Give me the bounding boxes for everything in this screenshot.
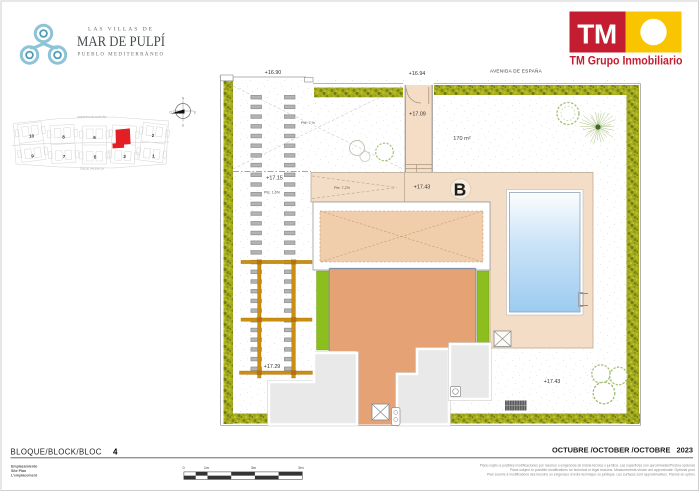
svg-text:L’emplacement: L’emplacement [11, 474, 38, 478]
svg-text:Pte: 7,2%: Pte: 7,2% [334, 186, 351, 190]
svg-text:Plans subject to possible modi: Plans subject to possible modifications … [510, 468, 696, 472]
svg-text:E: E [194, 111, 196, 115]
svg-text:+17.29: +17.29 [264, 364, 281, 370]
svg-text:+17.43: +17.43 [414, 185, 431, 191]
svg-text:+16.90: +16.90 [265, 70, 282, 76]
svg-text:N: N [182, 97, 185, 101]
svg-text:5m: 5m [298, 466, 303, 470]
svg-text:9: 9 [31, 154, 34, 159]
svg-text:3: 3 [123, 154, 126, 159]
svg-text:1m: 1m [204, 466, 209, 470]
svg-text:S: S [182, 124, 184, 128]
svg-text:+17.43: +17.43 [544, 379, 561, 385]
svg-text:Pte: 1,6%: Pte: 1,6% [264, 191, 281, 195]
svg-text:5: 5 [94, 155, 97, 160]
svg-text:MAR DE PULPÍ: MAR DE PULPÍ [77, 33, 165, 50]
svg-text:6: 6 [93, 135, 96, 140]
svg-text:TM Grupo Inmobiliario: TM Grupo Inmobiliario [570, 55, 683, 68]
svg-text:3m: 3m [251, 466, 256, 470]
svg-text:Plano sujeto a posibles modifi: Plano sujeto a posibles modificaciones p… [480, 464, 696, 468]
svg-text:CALLE VALENCIA: CALLE VALENCIA [80, 167, 104, 171]
svg-text:+16.94: +16.94 [409, 71, 426, 77]
svg-text:AVENIDA DE ESPAÑA: AVENIDA DE ESPAÑA [490, 68, 543, 74]
svg-text:10: 10 [29, 134, 35, 139]
svg-text:OCTUBRE /OCTOBER /OCTOBRE 20: OCTUBRE /OCTOBER /OCTOBRE 2023 [552, 446, 693, 455]
svg-text:Pte: 7 %: Pte: 7 % [301, 121, 316, 125]
svg-text:7: 7 [63, 154, 66, 159]
svg-text:+17.09: +17.09 [409, 112, 426, 118]
svg-text:4: 4 [113, 448, 118, 457]
svg-text:+17.15: +17.15 [266, 176, 283, 182]
svg-text:170 m²: 170 m² [453, 136, 471, 142]
svg-text:Emplazamiento: Emplazamiento [11, 465, 38, 469]
svg-text:PUEBLO MEDITERRÁNEO: PUEBLO MEDITERRÁNEO [78, 52, 165, 58]
svg-text:8: 8 [62, 135, 65, 140]
svg-text:Site Plan: Site Plan [11, 469, 26, 473]
svg-text:AVENIDA DE ESPAÑA: AVENIDA DE ESPAÑA [77, 114, 107, 119]
svg-text:TM: TM [577, 19, 616, 50]
svg-text:B: B [454, 179, 467, 199]
svg-text:2: 2 [152, 133, 155, 138]
svg-text:0: 0 [182, 466, 184, 470]
svg-text:O: O [169, 111, 172, 115]
svg-text:Plan soumis à modifications de: Plan soumis à modifications des besoins … [487, 473, 696, 477]
svg-text:1: 1 [152, 154, 155, 159]
svg-text:LAS VILLAS DE: LAS VILLAS DE [88, 28, 154, 33]
svg-text:BLOQUE/BLOCK/BLOC: BLOQUE/BLOCK/BLOC [11, 448, 102, 457]
